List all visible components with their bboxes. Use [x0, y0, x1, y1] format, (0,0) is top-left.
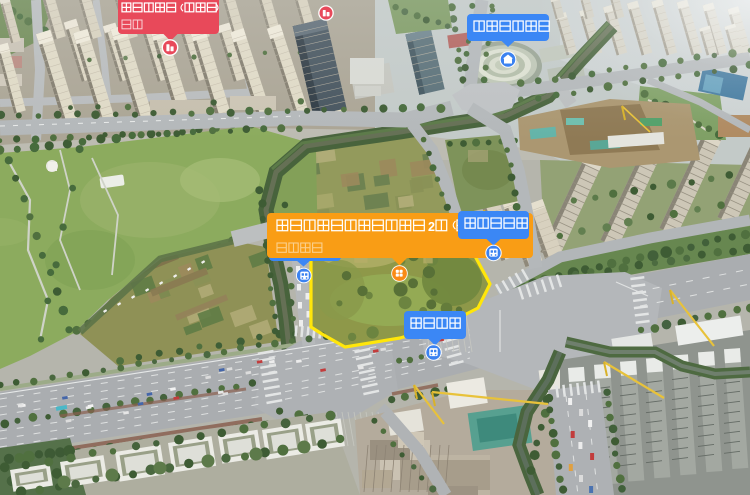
svg-text:2: 2: [428, 220, 435, 234]
